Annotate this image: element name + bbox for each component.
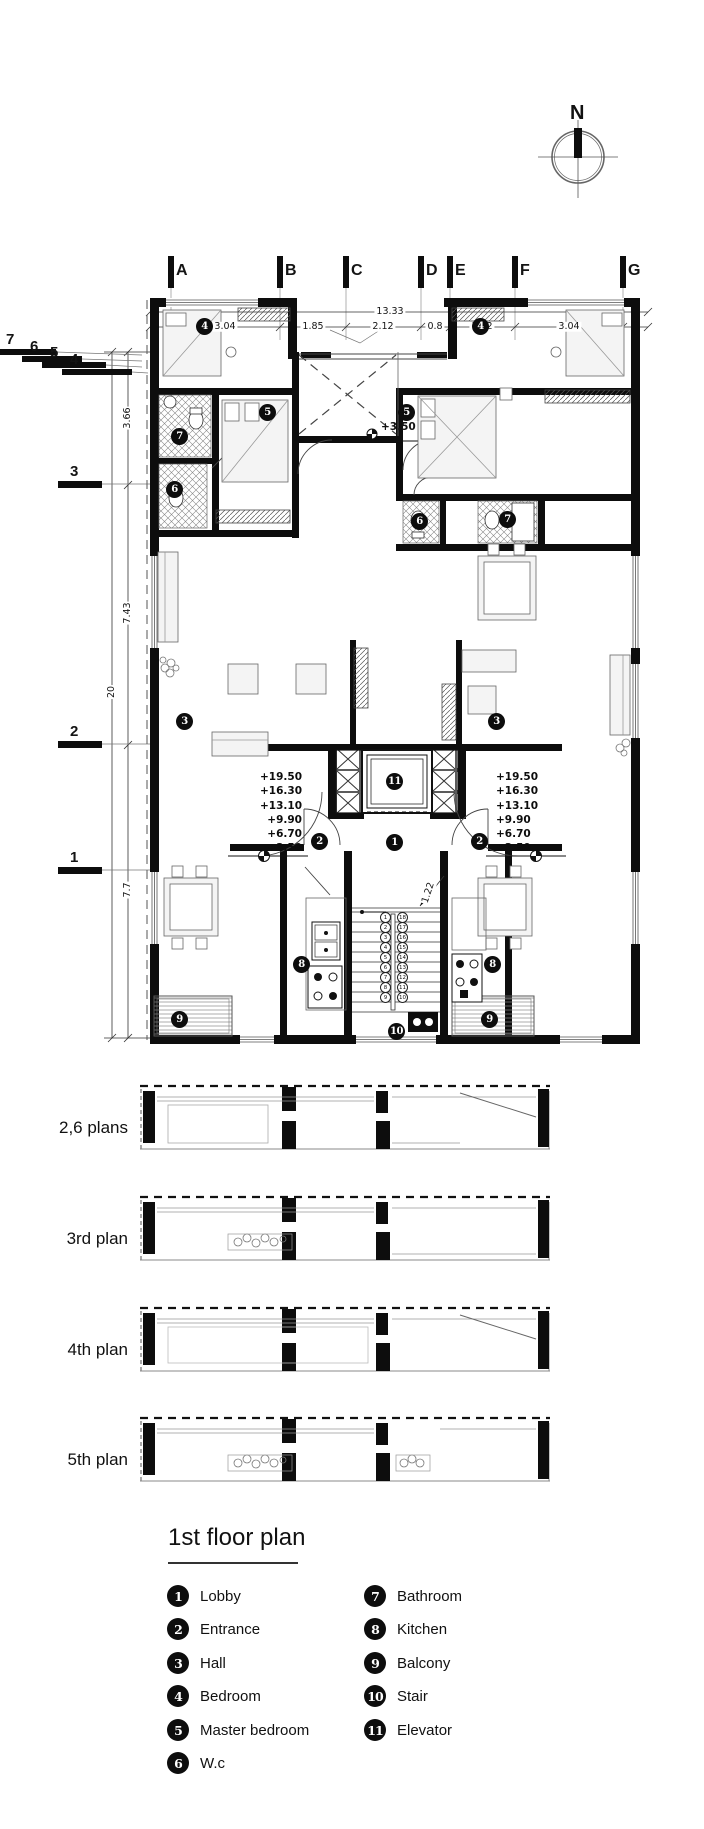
legend-num: 6 [167, 1752, 189, 1774]
step-circle: 10 [397, 992, 408, 1003]
marker-lobby: 1 [386, 834, 403, 851]
marker-entrance-right: 2 [471, 833, 488, 850]
legend-item-entrance: 2 Entrance [167, 1617, 260, 1641]
legend-num: 3 [167, 1652, 189, 1674]
strip-label-5th-plan: 5th plan [28, 1450, 128, 1470]
marker-entrance-left: 2 [311, 833, 328, 850]
dim-overall-width: 13.33 [374, 307, 405, 317]
marker-wc-left: 6 [166, 481, 183, 498]
legend-num: 9 [364, 1652, 386, 1674]
marker-hall-right: 3 [488, 713, 505, 730]
legend-num: 7 [364, 1585, 386, 1607]
marker-balcony-right: 9 [481, 1011, 498, 1028]
grid-col-b: B [285, 262, 297, 280]
level-value: +19.50 [496, 770, 584, 784]
grid-row-4: 4 [70, 351, 78, 368]
dim-seg-ab: 3.04 [212, 322, 237, 332]
kitchens [306, 898, 486, 1010]
strip-plan-26 [140, 1086, 550, 1149]
grid-row-1: 1 [70, 849, 78, 866]
level-value: +9.90 [214, 813, 302, 827]
legend-label: Entrance [200, 1621, 260, 1638]
level-value: +16.30 [214, 784, 302, 798]
dim-seg-bc: 1.85 [300, 322, 325, 332]
strip-label-26-plans: 2,6 plans [28, 1118, 128, 1138]
grid-row-7: 7 [6, 331, 14, 348]
level-list-right: +19.50 +16.30 +13.10 +9.90 +6.70 +3.50 [496, 770, 584, 856]
legend-item-bedroom: 4 Bedroom [167, 1684, 261, 1708]
legend-num: 4 [167, 1685, 189, 1707]
level-value: +3.50 [214, 841, 302, 855]
grid-row-6: 6 [30, 338, 38, 355]
legend-num: 5 [167, 1719, 189, 1741]
strip-label-4th-plan: 4th plan [28, 1340, 128, 1360]
marker-bedroom-right: 4 [472, 318, 489, 335]
terrace-level: +3.50 [381, 421, 416, 433]
level-value: +6.70 [214, 827, 302, 841]
floor-plan-sheet: N A B C D E F G 3 2 1 7 6 5 4 13.33 3.04… [0, 0, 704, 1829]
grid-col-g: G [628, 262, 640, 280]
legend-underline [168, 1562, 298, 1564]
level-value: +19.50 [214, 770, 302, 784]
grid-row-ticks [58, 481, 150, 874]
dim-left-743: 7.43 [123, 601, 133, 624]
legend-item-elevator: 11 Elevator [364, 1718, 452, 1742]
step-circle: 9 [380, 992, 391, 1003]
legend-label: Lobby [200, 1588, 241, 1605]
north-arrow-icon [538, 120, 618, 198]
legend-label: Master bedroom [200, 1722, 309, 1739]
legend-title: 1st floor plan [168, 1524, 305, 1552]
level-list-left: +19.50 +16.30 +13.10 +9.90 +6.70 +3.50 [214, 770, 302, 856]
legend-label: Balcony [397, 1655, 450, 1672]
legend-item-balcony: 9 Balcony [364, 1651, 450, 1675]
balcony-left [154, 996, 232, 1036]
legend-item-hall: 3 Hall [167, 1651, 226, 1675]
marker-bedroom-left: 4 [196, 318, 213, 335]
strip-plan-5th [140, 1418, 550, 1481]
grid-col-a: A [176, 262, 188, 280]
legend-item-wc: 6 W.c [167, 1751, 225, 1775]
legend-label: W.c [200, 1755, 225, 1772]
strip-plan-4th [140, 1308, 550, 1371]
legend-num: 10 [364, 1685, 386, 1707]
grid-col-c: C [351, 262, 363, 280]
dim-seg-cd: 2.12 [370, 322, 395, 332]
marker-balcony-left: 9 [171, 1011, 188, 1028]
legend-item-lobby: 1 Lobby [167, 1584, 241, 1608]
marker-master-left: 5 [259, 404, 276, 421]
north-label: N [570, 102, 584, 125]
legend-label: Stair [397, 1688, 428, 1705]
legend-label: Bathroom [397, 1588, 462, 1605]
dim-overall-height: 20 [107, 685, 117, 699]
marker-stair: 10 [388, 1023, 405, 1040]
grid-col-e: E [455, 262, 466, 280]
legend-item-stair: 10 Stair [364, 1684, 428, 1708]
legend-num: 1 [167, 1585, 189, 1607]
doormat [408, 1012, 438, 1032]
grid-column-ticks [168, 256, 626, 288]
legend-num: 11 [364, 1719, 386, 1741]
grid-row-2: 2 [70, 723, 78, 740]
marker-master-right: 5 [398, 404, 415, 421]
marker-bathroom-right: 7 [499, 511, 516, 528]
strip-label-3rd-plan: 3rd plan [28, 1229, 128, 1249]
strip-plan-3rd [140, 1197, 550, 1260]
legend-item-master-bedroom: 5 Master bedroom [167, 1718, 309, 1742]
dim-left-366: 3.66 [123, 406, 133, 429]
legend-label: Bedroom [200, 1688, 261, 1705]
grid-col-d: D [426, 262, 438, 280]
legend-label: Hall [200, 1655, 226, 1672]
legend-label: Elevator [397, 1722, 452, 1739]
level-value: +3.50 [496, 841, 584, 855]
dim-seg-de: 0.8 [425, 322, 444, 332]
level-value: +13.10 [496, 799, 584, 813]
dim-left-77: 7.7 [123, 881, 133, 898]
level-value: +6.70 [496, 827, 584, 841]
level-value: +9.90 [496, 813, 584, 827]
legend-item-kitchen: 8 Kitchen [364, 1617, 447, 1641]
marker-wc-right: 6 [411, 513, 428, 530]
dim-seg-fg: 3.04 [556, 322, 581, 332]
marker-kitchen-right: 8 [484, 956, 501, 973]
level-value: +16.30 [496, 784, 584, 798]
marker-elevator: 11 [386, 773, 403, 790]
grid-col-f: F [520, 262, 530, 280]
legend-num: 2 [167, 1618, 189, 1640]
marker-kitchen-left: 8 [293, 956, 310, 973]
marker-bathroom-left: 7 [171, 428, 188, 445]
legend-label: Kitchen [397, 1621, 447, 1638]
marker-hall-left: 3 [176, 713, 193, 730]
grid-row-3: 3 [70, 463, 78, 480]
level-value: +13.10 [214, 799, 302, 813]
grid-row-5: 5 [50, 344, 58, 361]
legend-num: 8 [364, 1618, 386, 1640]
legend-item-bathroom: 7 Bathroom [364, 1584, 462, 1608]
